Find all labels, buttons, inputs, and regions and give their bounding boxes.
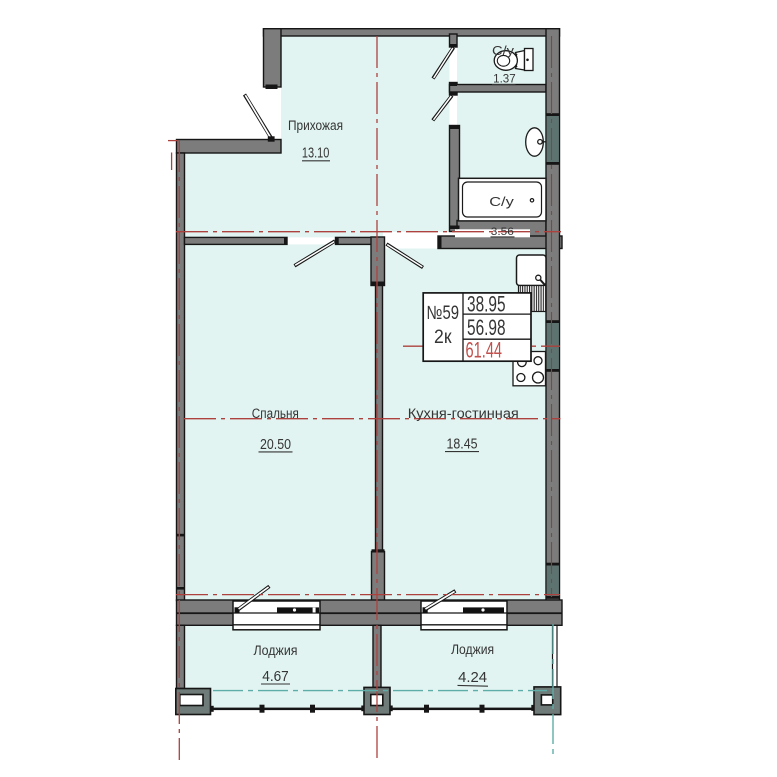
svg-text:1.37: 1.37 bbox=[493, 72, 516, 86]
svg-text:61.44: 61.44 bbox=[466, 337, 503, 362]
svg-text:4.67: 4.67 bbox=[262, 669, 289, 685]
svg-text:Лоджия: Лоджия bbox=[451, 642, 494, 657]
svg-text:56.98: 56.98 bbox=[467, 315, 506, 340]
svg-text:2к: 2к bbox=[434, 326, 452, 348]
svg-text:С/у: С/у bbox=[489, 194, 514, 209]
svg-text:Спальня: Спальня bbox=[252, 406, 299, 421]
svg-text:18.45: 18.45 bbox=[447, 437, 478, 453]
svg-text:Лоджия: Лоджия bbox=[254, 643, 298, 658]
svg-text:38.95: 38.95 bbox=[467, 292, 506, 317]
svg-text:С/у: С/у bbox=[492, 44, 515, 58]
svg-text:Прихожая: Прихожая bbox=[288, 118, 343, 133]
svg-text:4.24: 4.24 bbox=[458, 670, 487, 686]
svg-text:20.50: 20.50 bbox=[260, 437, 291, 453]
svg-text:№59: №59 bbox=[427, 303, 460, 324]
svg-text:Кухня-гостинная: Кухня-гостинная bbox=[408, 406, 519, 421]
svg-text:13.10: 13.10 bbox=[302, 146, 330, 162]
